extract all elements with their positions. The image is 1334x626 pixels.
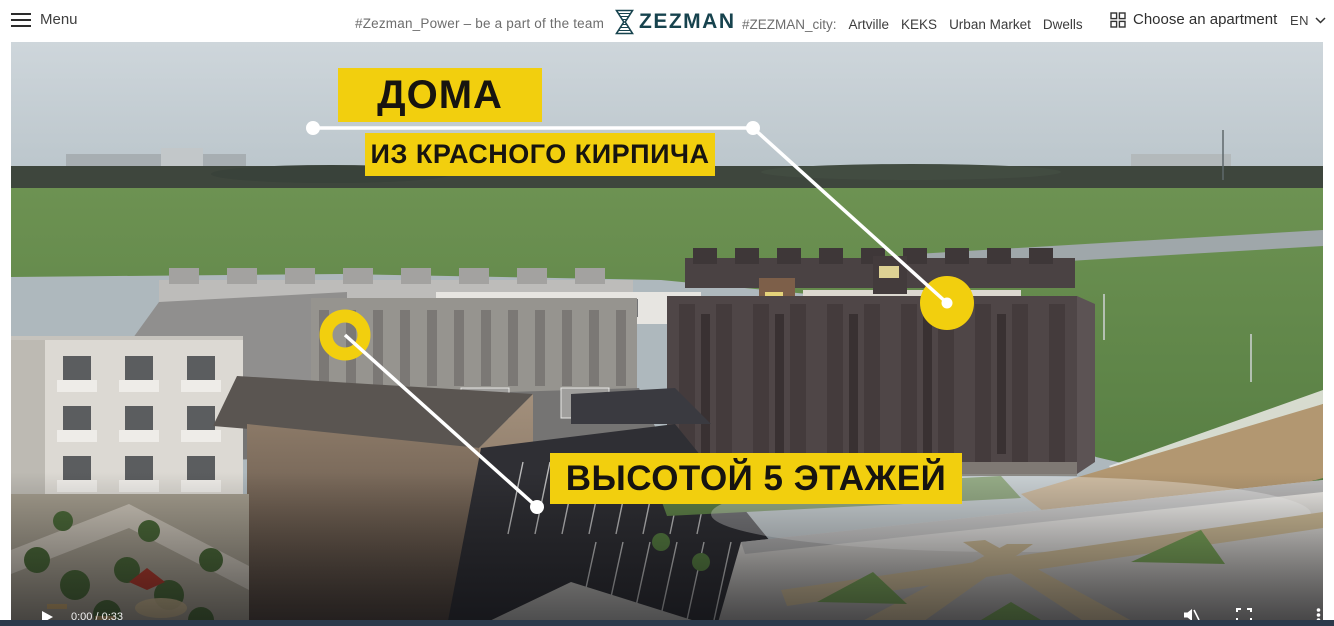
zezman-logo[interactable]: ZEZMAN bbox=[615, 9, 736, 35]
site-header: Menu #Zezman_Power – be a part of the te… bbox=[0, 0, 1334, 42]
chevron-down-icon bbox=[1315, 17, 1326, 24]
city-link-artville[interactable]: Artville bbox=[849, 17, 890, 32]
choose-apartment-label: Choose an apartment bbox=[1133, 11, 1277, 28]
caption-houses-title: ДОМА bbox=[338, 68, 542, 122]
language-selector[interactable]: EN bbox=[1290, 13, 1326, 28]
recruiting-tagline: #Zezman_Power – be a part of the team bbox=[355, 16, 604, 31]
promo-video-player[interactable]: ДОМА ИЗ КРАСНОГО КИРПИЧА ВЫСОТОЙ 5 ЭТАЖЕ… bbox=[11, 42, 1323, 626]
menu-button[interactable]: Menu bbox=[10, 11, 78, 28]
language-code: EN bbox=[1290, 13, 1309, 28]
hamburger-icon bbox=[10, 12, 32, 28]
next-section-edge bbox=[0, 620, 1334, 626]
city-link-keks[interactable]: KEKS bbox=[901, 17, 937, 32]
caption-height: ВЫСОТОЙ 5 ЭТАЖЕЙ bbox=[550, 453, 962, 504]
city-projects-nav: #ZEZMAN_city: Artville KEKS Urban Market… bbox=[742, 17, 1095, 32]
choose-apartment-button[interactable]: Choose an apartment bbox=[1110, 11, 1277, 28]
menu-label: Menu bbox=[40, 11, 78, 28]
caption-houses-subtitle: ИЗ КРАСНОГО КИРПИЧА bbox=[365, 133, 715, 176]
city-link-dwells[interactable]: Dwells bbox=[1043, 17, 1083, 32]
aerial-scene bbox=[11, 42, 1323, 626]
city-link-urban-market[interactable]: Urban Market bbox=[949, 17, 1031, 32]
city-hashtag-label: #ZEZMAN_city: bbox=[742, 17, 837, 32]
logo-text: ZEZMAN bbox=[639, 10, 736, 34]
grid-icon bbox=[1110, 12, 1126, 28]
logo-hourglass-icon bbox=[615, 9, 634, 35]
